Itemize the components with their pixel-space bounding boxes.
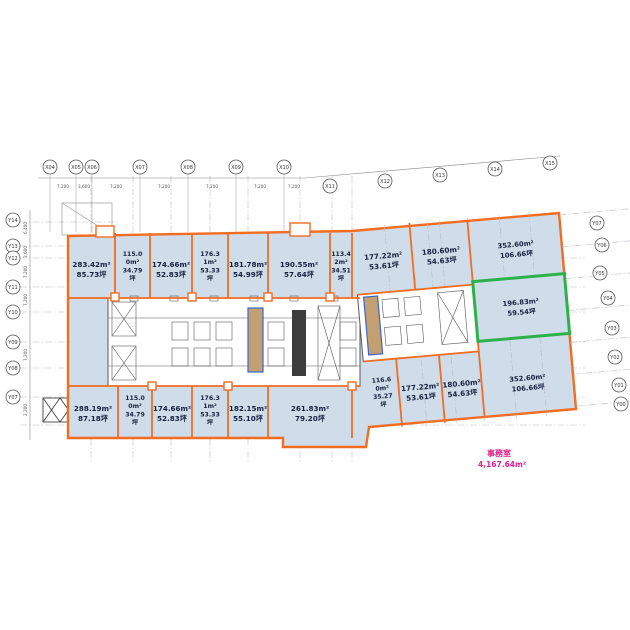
floor-plan-svg: 7,2003,6007,2007,2007,2007,2007,2006,400… [0,0,630,630]
grid-bubble-label: X15 [545,161,555,167]
grid-bubble-label: X05 [71,165,81,171]
grid-bubble: X07 [133,160,147,174]
grid-bubble: Y05 [593,266,607,280]
grid-bubble-label: X08 [183,165,193,171]
grid-bubble-label: Y02 [609,355,619,361]
grid-bubble: X15 [543,156,557,170]
room-area-label: 1m² [203,403,217,410]
dimension-text: 7,200 [288,184,300,189]
grid-bubble: X13 [433,168,447,182]
room-area-label: 87.18坪 [78,414,109,423]
room-area-label: 34.51 [331,267,351,274]
door-opening [111,293,119,301]
room-label-group: 180.60m²54.63坪 [442,377,482,399]
dimension-text: 7,200 [158,184,170,189]
door-opening [348,382,356,390]
grid-bubble: X04 [43,160,57,174]
room-area-label: 57.64坪 [284,270,315,279]
grid-bubble-label: X14 [490,167,500,173]
room-area-label: 115.0 [125,395,145,402]
room-area-label: 1m² [203,259,217,266]
room-area-label: 坪 [132,419,139,427]
grid-line [568,303,630,311]
room-area-label: 34.79 [123,267,143,274]
grid-bubble: Y10 [6,305,20,319]
dimension-text: 7,200 [23,294,28,306]
room-label-group: 182.15m²55.10坪 [229,404,267,423]
room-area-label: 190.55m² [280,260,318,269]
room-area-label: 261.83m² [291,404,329,413]
grid-line [570,335,630,343]
grid-bubble-label: Y14 [7,218,17,224]
grid-bubble: Y02 [608,350,622,364]
grid-bubble: X10 [277,160,291,174]
grid-bubble: X05 [69,160,83,174]
highlighted-room-group [473,274,570,342]
grid-bubble: Y07 [6,390,20,404]
room-area-label: 0m² [126,259,140,266]
grid-bubble: Y14 [6,213,20,227]
room-area-label: 174.66m² [153,404,191,413]
door-opening [224,382,232,390]
room-label-group: 181.78m²54.99坪 [229,260,267,279]
grid-bubble-label: X11 [325,184,335,190]
dimension-text: 7,200 [206,184,218,189]
room-area-label: 176.3 [200,395,220,402]
service-shaft-dark [292,310,306,376]
room-label-group: 177.22m²53.61坪 [401,381,441,403]
grid-bubble: X09 [229,160,243,174]
grid-bubble-label: Y07 [7,395,17,401]
room-area-label: 坪 [207,275,214,283]
room-area-label: 182.15m² [229,404,267,413]
room-label-group: 174.66m²52.83坪 [152,260,190,279]
dimension-text: 7,200 [23,266,28,278]
dimension-text: 7,200 [110,184,122,189]
room-area-label: 283.42m² [72,260,110,269]
grid-bubble-label: X12 [380,179,390,185]
room-area-label: 52.83坪 [156,270,187,279]
room-area-label: 34.79 [125,411,145,418]
room-area-label: 52.83坪 [157,414,188,423]
grid-bubble: X08 [181,160,195,174]
door-opening [188,293,196,301]
entrance-vestibule [290,223,310,236]
dimension-text: 3,600 [78,184,90,189]
room-label-group: 177.22m²53.61坪 [364,250,404,272]
dimension-text: 6,400 [23,222,28,234]
door-opening [326,293,334,301]
room-area-label: 2m² [334,259,348,266]
plan-root: 7,2003,6007,2007,2007,2007,2007,2006,400… [6,156,630,462]
room-label-group: 174.66m²52.83坪 [153,404,191,423]
grid-bubble: Y11 [6,280,20,294]
dimension-text: 7,200 [254,184,266,189]
highlight-shaft [248,308,263,372]
grid-bubble-label: Y13 [7,244,17,250]
door-opening [264,293,272,301]
grid-bubble: X06 [85,160,99,174]
grid-bubble-label: X13 [435,173,445,179]
grid-bubble-label: Y04 [602,296,612,302]
room-label-group: 180.60m²54.63坪 [421,245,461,267]
grid-line [573,367,630,375]
dimension-text: 7,200 [57,184,69,189]
grid-line [559,207,630,215]
room-area-label: 53.33 [200,267,220,274]
drawing-sheet: 7,2003,6007,2007,2007,2007,2007,2006,400… [0,0,630,630]
room-area-label: 174.66m² [152,260,190,269]
grid-bubble: X11 [323,179,337,193]
grid-bubble-label: Y01 [613,383,623,389]
door-opening [148,382,156,390]
dimension-text: 2,200 [23,404,28,416]
grid-bubble: Y12 [6,251,20,265]
grid-bubble-label: Y11 [7,285,17,291]
dimension-text: 3,600 [23,246,28,258]
grid-bubble-label: X10 [279,165,289,171]
room-area-label: 181.78m² [229,260,267,269]
grid-bubble: Y00 [614,397,628,411]
room-area-label: 0m² [375,385,389,393]
grid-bubble: Y03 [605,321,619,335]
grid-bubble-label: Y03 [606,326,616,332]
room-area-label: 85.73坪 [77,270,108,279]
dimension-line [305,156,560,178]
room-label-group: 283.42m²85.73坪 [72,260,110,279]
grid-bubble: X12 [378,174,392,188]
grid-bubble: X14 [488,162,502,176]
grid-bubble-label: Y08 [7,366,17,372]
grid-bubble-label: X07 [135,165,145,171]
grid-bubble-label: Y10 [7,310,17,316]
grid-bubble: Y07 [590,216,604,230]
core-main [108,298,360,386]
grid-bubble-label: X09 [231,165,241,171]
room-label-group: 288.19m²87.18坪 [74,404,112,423]
room-area-label: 79.20坪 [295,414,326,423]
room-area-label: 坪 [338,275,345,283]
room-area-label: 54.99坪 [233,270,264,279]
room-label-group: 261.83m²79.20坪 [291,404,329,423]
room-label-group: 190.55m²57.64坪 [280,260,318,279]
room-area-label: 113.4 [331,251,351,258]
office-area-note-title: 事務室 [487,448,511,458]
grid-bubble-label: Y12 [7,256,17,262]
entrance-vestibule [96,226,114,237]
grid-bubble: Y08 [6,361,20,375]
office-area-note-value: 4,167.64m² [478,460,526,469]
grid-bubble: Y04 [601,291,615,305]
grid-bubble-label: X04 [45,165,55,171]
highlighted-room[interactable] [473,274,570,342]
room-area-label: 坪 [207,419,214,427]
grid-bubble: Y01 [612,378,626,392]
room-area-label: 坪 [129,275,136,283]
room-area-label: 0m² [128,403,142,410]
grid-bubble: Y06 [595,238,609,252]
grid-bubble-label: X06 [87,165,97,171]
dimension-text: 7,200 [23,349,28,361]
grid-bubble-label: Y07 [591,221,601,227]
grid-bubble: Y09 [6,335,20,349]
grid-bubble-label: Y06 [596,243,606,249]
room-area-label: 115.0 [123,251,143,258]
grid-bubble-label: Y09 [7,340,17,346]
room-area-label: 53.33 [200,411,220,418]
room-area-label: 176.3 [200,251,220,258]
room-area-label: 55.10坪 [233,414,264,423]
room-area-label: 288.19m² [74,404,112,413]
